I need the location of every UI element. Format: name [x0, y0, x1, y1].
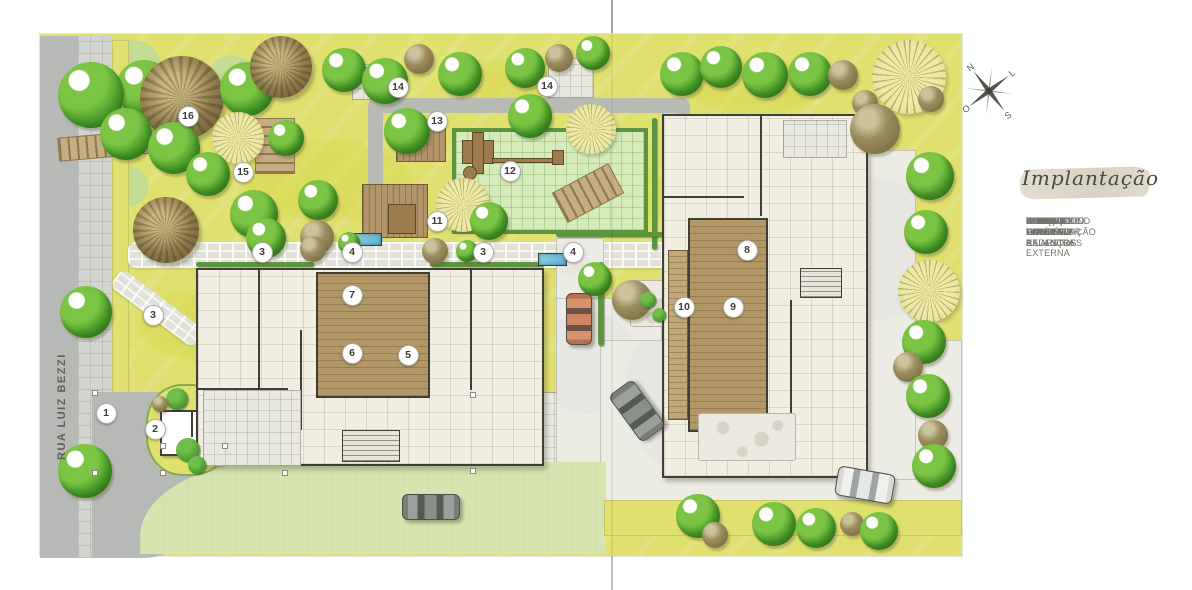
tower-a-wall	[258, 270, 260, 388]
tower-b-wall	[790, 300, 792, 420]
hedge	[196, 262, 314, 267]
hedge	[556, 232, 676, 237]
outdoor-lounge-pad	[352, 64, 394, 100]
tower-a-amenity-pad	[203, 390, 301, 466]
hedge	[652, 118, 657, 250]
family-space-deck	[396, 124, 446, 162]
hedge	[430, 262, 544, 267]
tower-a-gourmet-core	[316, 272, 430, 398]
fitness-terrace	[668, 250, 688, 420]
lawn-patch	[690, 60, 820, 115]
compass-east-label: L	[1007, 68, 1017, 79]
tower-b-wall	[664, 196, 744, 198]
legend-panel: Implantação 1GUARITA2PORTE-COCHÉRE3CAMIN…	[1014, 160, 1180, 480]
street-name-label: RUA LUIZ BEZZI	[56, 292, 68, 460]
shrub-patch	[210, 56, 254, 94]
south-verge	[604, 500, 962, 536]
car	[566, 293, 592, 345]
outdoor-lounge-pad	[548, 58, 594, 98]
site-plan-page: 1615141314121134343765810912 RUA LUIZ BE…	[0, 0, 1192, 590]
tower-b-wall	[760, 116, 762, 216]
tower-b-fitness-core	[688, 218, 768, 432]
page-fold-line	[611, 33, 613, 556]
south-lawn	[140, 462, 606, 554]
compass-south-label: S	[1003, 110, 1014, 122]
car	[402, 494, 460, 520]
page-fold-line	[611, 0, 613, 33]
playground-equipment	[552, 150, 564, 165]
legend-title: Implantação	[1022, 166, 1172, 190]
fountain	[352, 233, 382, 246]
boardwalk	[255, 118, 295, 174]
playground-equipment	[463, 166, 477, 180]
tower-a-stair-core	[342, 430, 400, 462]
compass-north-label: N	[965, 61, 976, 73]
pergola-structure	[388, 204, 416, 234]
hedge	[598, 262, 604, 346]
fountain	[538, 253, 567, 266]
tower-b-stair-core	[800, 268, 842, 298]
legend-item-label: BOSQUE DE PRESERVAÇÃO	[1026, 216, 1096, 238]
tower-b-patio	[783, 120, 847, 158]
tower-a-wall	[470, 270, 472, 390]
compass-west-label: O	[960, 103, 972, 115]
stone-patio	[698, 413, 796, 461]
playground-equipment	[492, 158, 556, 163]
page-fold-line	[611, 556, 613, 590]
